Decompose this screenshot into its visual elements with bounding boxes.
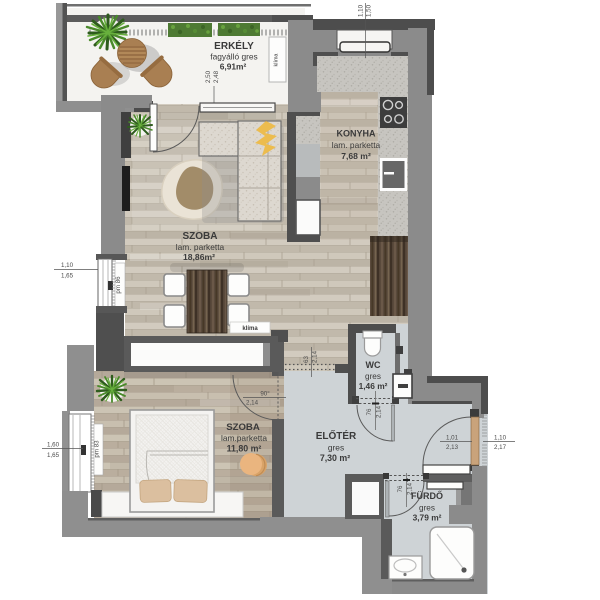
svg-text:1,60: 1,60 <box>47 442 60 449</box>
svg-text:7,68 m²: 7,68 m² <box>341 151 371 161</box>
svg-text:pm 86: pm 86 <box>115 276 122 294</box>
svg-text:klíma: klíma <box>274 54 280 67</box>
svg-text:2,14: 2,14 <box>376 405 383 418</box>
svg-text:90°: 90° <box>260 391 270 398</box>
svg-text:FÜRDŐ: FÜRDŐ <box>411 490 443 501</box>
svg-text:1,01: 1,01 <box>446 435 459 442</box>
svg-text:ELŐTÉR: ELŐTÉR <box>316 429 357 442</box>
svg-text:1,10: 1,10 <box>61 262 74 269</box>
svg-text:2,14: 2,14 <box>312 350 319 363</box>
svg-text:KONYHA: KONYHA <box>336 129 376 139</box>
svg-text:1,65: 1,65 <box>61 273 74 280</box>
svg-text:1,46 m²: 1,46 m² <box>359 381 388 391</box>
svg-text:76: 76 <box>366 408 373 415</box>
svg-text:ERKÉLY: ERKÉLY <box>214 39 254 52</box>
svg-text:WC: WC <box>366 360 381 370</box>
svg-text:gres: gres <box>328 443 344 453</box>
svg-text:6,91m²: 6,91m² <box>220 62 247 72</box>
svg-text:2,48: 2,48 <box>213 70 220 83</box>
svg-text:18,86m²: 18,86m² <box>183 252 215 262</box>
svg-text:lam. parketta: lam. parketta <box>332 140 381 150</box>
svg-text:lam. parketta: lam. parketta <box>176 242 225 252</box>
svg-text:1,10: 1,10 <box>358 4 365 17</box>
svg-text:2,14: 2,14 <box>246 400 259 407</box>
svg-text:1,65: 1,65 <box>47 452 60 459</box>
svg-text:2,50: 2,50 <box>205 70 212 83</box>
svg-text:gres: gres <box>365 372 381 381</box>
svg-text:gres: gres <box>419 504 435 513</box>
svg-text:klíma: klíma <box>242 326 258 332</box>
svg-text:63: 63 <box>303 356 310 363</box>
svg-text:fagyálló gres: fagyálló gres <box>210 52 258 62</box>
svg-text:2,17: 2,17 <box>494 444 507 451</box>
svg-text:3,79 m²: 3,79 m² <box>413 513 442 523</box>
svg-text:lam.parketta: lam.parketta <box>221 433 267 443</box>
svg-text:SZOBA: SZOBA <box>226 422 260 433</box>
svg-text:1,50: 1,50 <box>366 4 373 17</box>
svg-text:11,80 m²: 11,80 m² <box>227 444 262 454</box>
svg-text:SZOBA: SZOBA <box>183 231 218 242</box>
svg-text:1,10: 1,10 <box>494 435 507 442</box>
svg-text:pm 83: pm 83 <box>94 440 101 458</box>
svg-text:2,13: 2,13 <box>446 444 459 451</box>
svg-text:7,30 m²: 7,30 m² <box>320 453 350 463</box>
svg-text:76: 76 <box>397 485 404 492</box>
